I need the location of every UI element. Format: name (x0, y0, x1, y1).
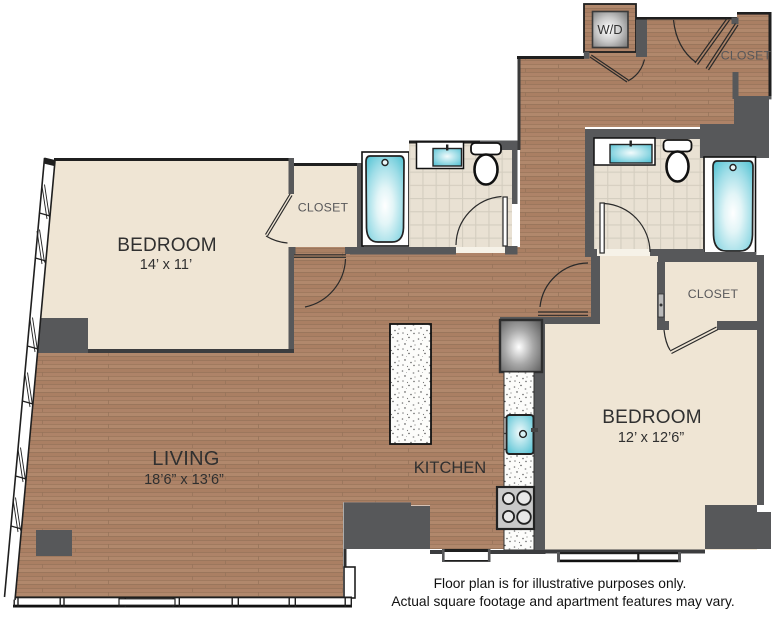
svg-text:LIVING: LIVING (152, 448, 219, 470)
svg-text:CLOSET: CLOSET (688, 287, 739, 301)
svg-text:BEDROOM: BEDROOM (602, 407, 702, 428)
svg-text:18’6” x 13’6”: 18’6” x 13’6” (144, 472, 224, 488)
svg-text:14’ x 11’: 14’ x 11’ (140, 257, 192, 273)
svg-text:CLOSET: CLOSET (721, 49, 772, 63)
svg-text:W/D: W/D (597, 22, 622, 37)
svg-text:CLOSET: CLOSET (298, 201, 349, 215)
svg-text:12’ x 12’6”: 12’ x 12’6” (618, 430, 685, 446)
svg-text:KITCHEN: KITCHEN (414, 459, 486, 477)
svg-text:BEDROOM: BEDROOM (117, 235, 217, 256)
svg-text:Floor plan is for illustrative: Floor plan is for illustrative purposes … (434, 576, 687, 591)
svg-text:Actual square footage and apar: Actual square footage and apartment feat… (391, 594, 734, 609)
